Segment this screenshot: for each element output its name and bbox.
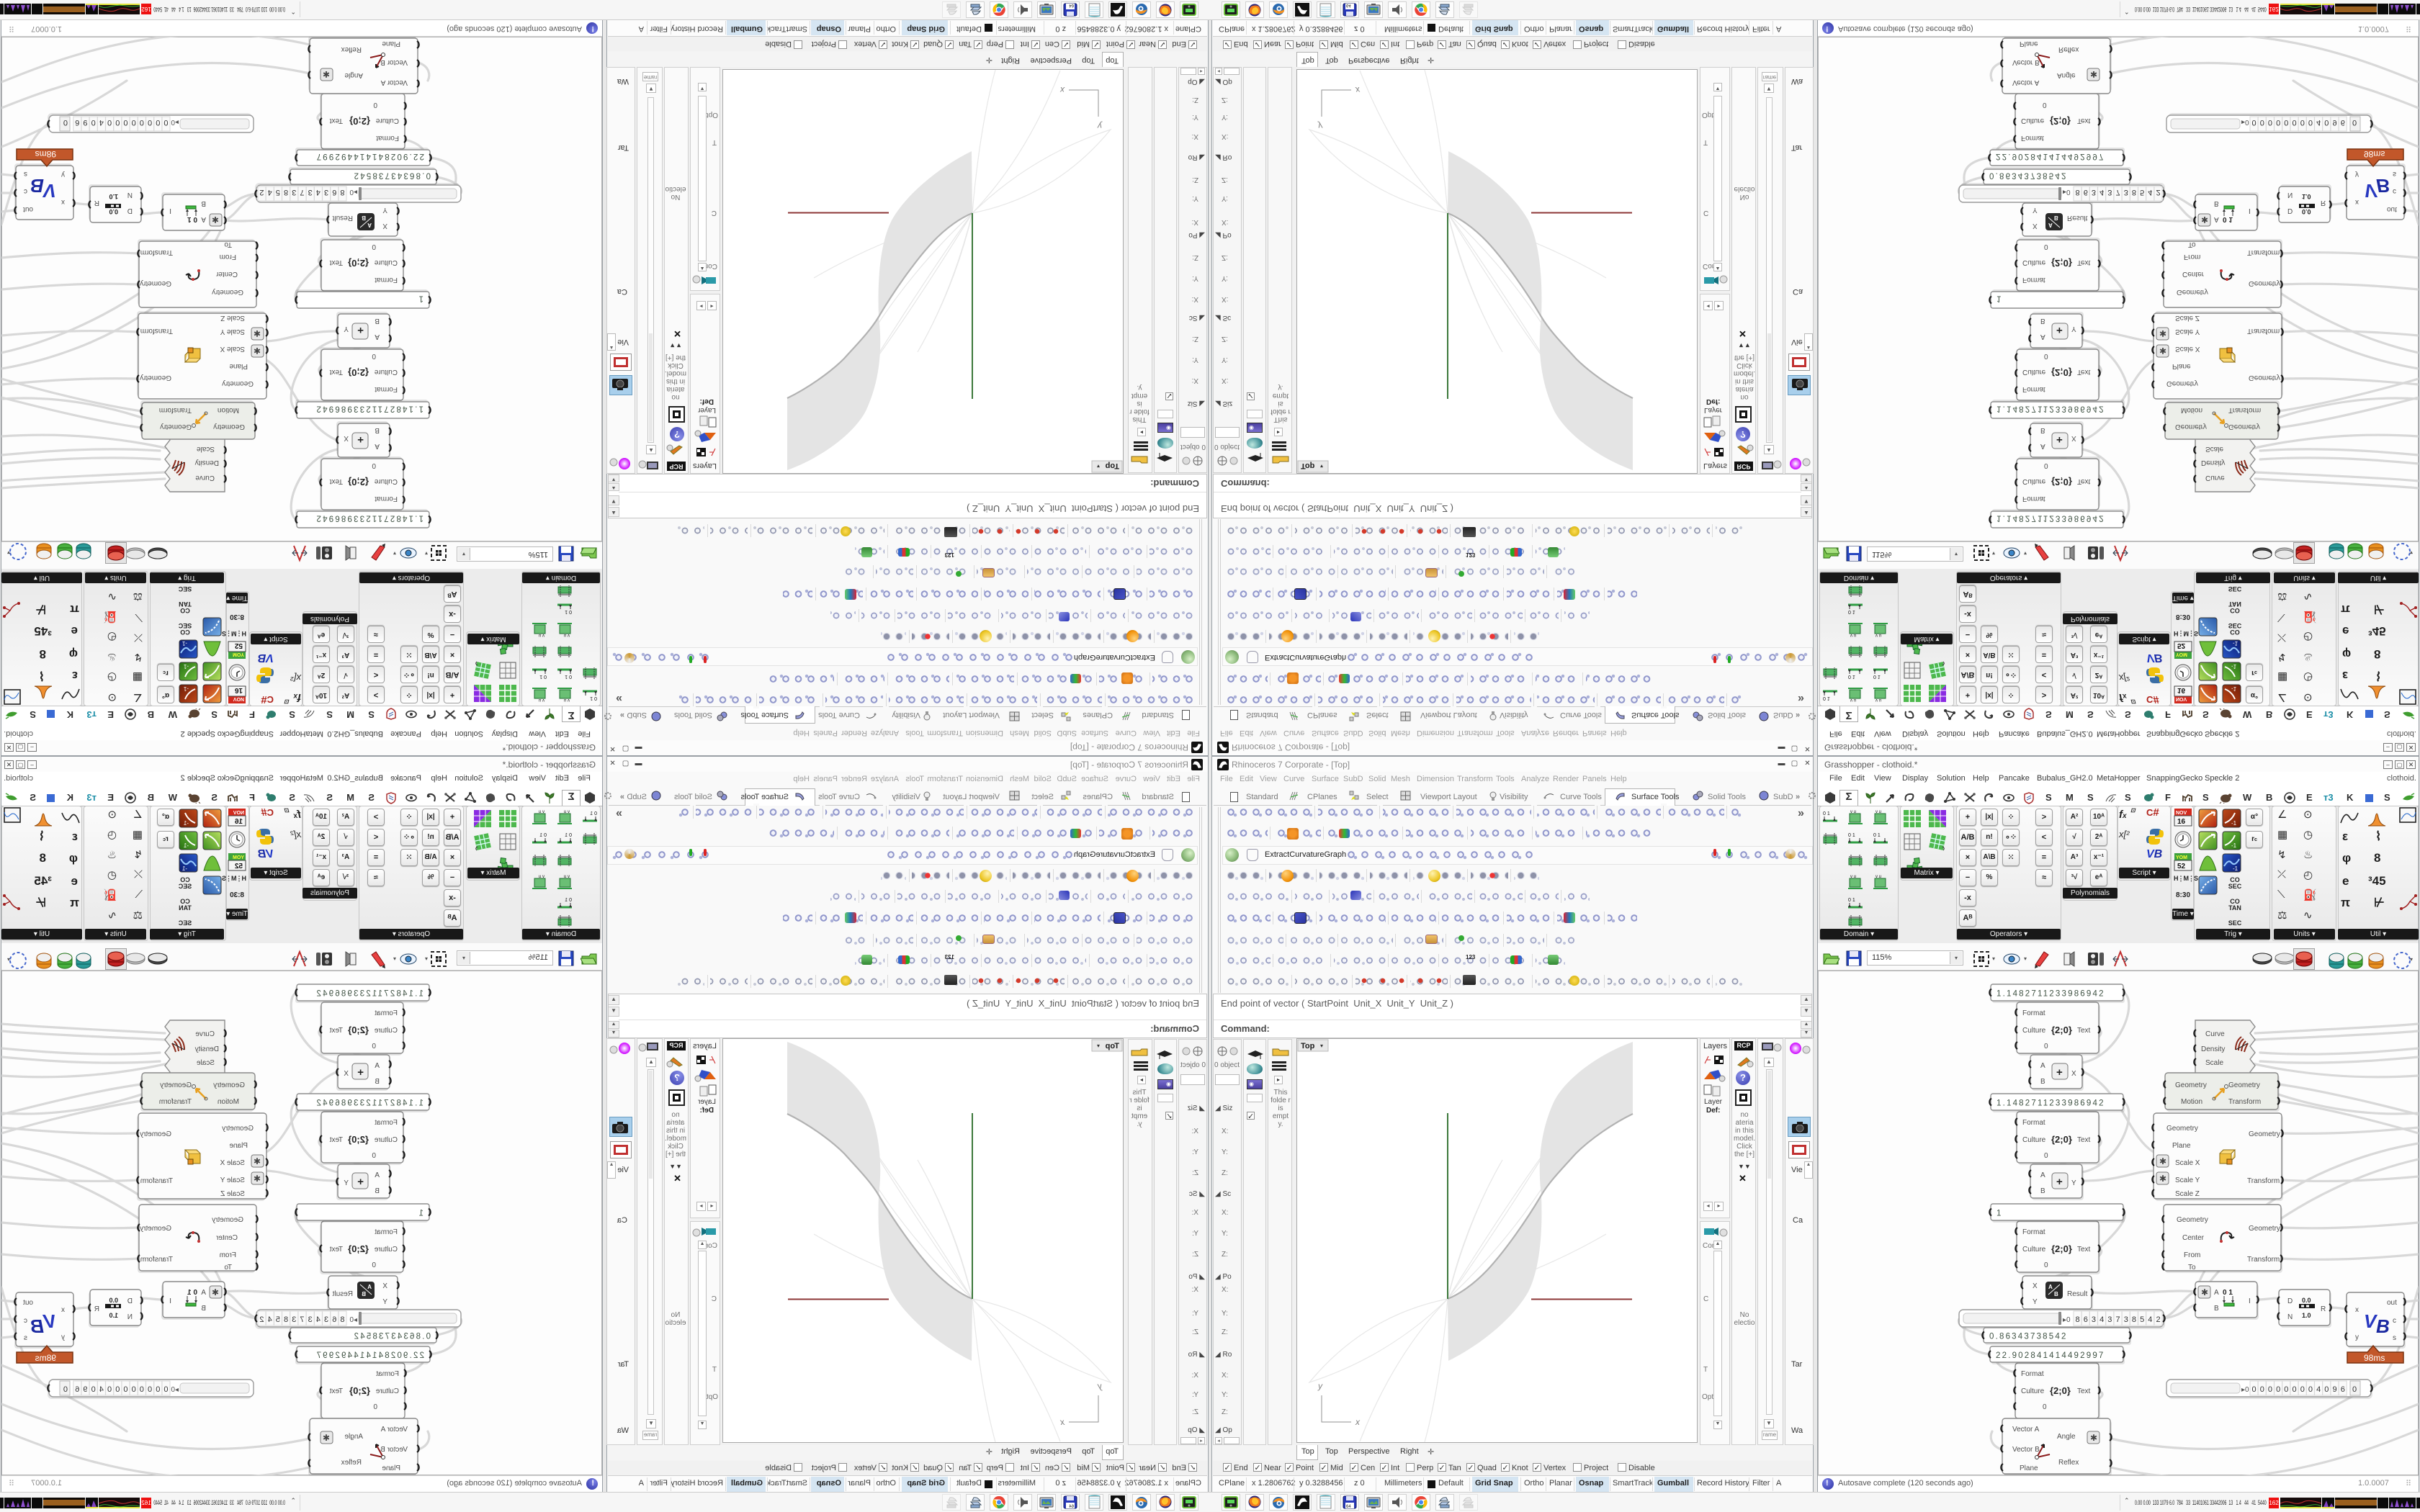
svg-text:B: B (30, 1315, 44, 1337)
svg-text:64: 64 (1069, 3, 1074, 7)
svg-text:Plane: Plane (2020, 40, 2038, 48)
svg-text:B: B (375, 1078, 380, 1086)
svg-text:1: 1 (1996, 1210, 2003, 1218)
svg-text:Text: Text (2077, 368, 2091, 376)
svg-text:-1: -1 (2233, 640, 2238, 647)
svg-text:Motion: Motion (218, 1098, 239, 1106)
svg-text:s: s (2393, 1334, 2396, 1342)
svg-text:8: 8 (2132, 1315, 2136, 1324)
svg-text:X: X (2071, 434, 2076, 442)
svg-text:Density: Density (2201, 1045, 2225, 1053)
svg-text:+: + (2056, 324, 2063, 336)
svg-text:Geometry: Geometry (2228, 423, 2260, 431)
svg-text:16: 16 (2177, 686, 2186, 694)
svg-text:Format: Format (375, 276, 398, 284)
svg-text:Scale Y: Scale Y (220, 328, 245, 336)
svg-text:0.86343738542: 0.86343738542 (1989, 171, 2068, 180)
svg-text:Curve: Curve (195, 474, 215, 482)
svg-text:0: 0 (2044, 243, 2048, 251)
svg-text:X: X (2033, 222, 2038, 230)
svg-text:Culture: Culture (374, 1136, 398, 1144)
svg-text:✱: ✱ (2201, 215, 2208, 225)
svg-text:✱: ✱ (2159, 1156, 2166, 1166)
svg-text:16: 16 (234, 686, 243, 694)
svg-text:9: 9 (2333, 1385, 2337, 1394)
svg-text:Top: Top (1301, 462, 1315, 470)
svg-text:I: I (169, 207, 171, 215)
svg-text:Y: Y (344, 1179, 349, 1187)
svg-text:1.0: 1.0 (109, 193, 118, 200)
svg-text:y: y (2355, 171, 2359, 179)
svg-text:v u: v u (1875, 810, 1881, 814)
svg-text:Transform: Transform (159, 406, 192, 414)
svg-text:Culture: Culture (2022, 477, 2046, 485)
svg-text:v u: v u (1850, 633, 1856, 637)
svg-text:Format: Format (2021, 1370, 2044, 1378)
svg-text:0: 0 (148, 118, 152, 127)
svg-text:0: 0 (123, 1385, 127, 1394)
svg-text:9: 9 (83, 118, 87, 127)
svg-text:Transform: Transform (140, 248, 173, 256)
svg-text:c: c (24, 1317, 27, 1325)
svg-text:8: 8 (340, 1315, 344, 1324)
svg-text:▸0: ▸0 (2241, 118, 2249, 126)
svg-text:I: I (169, 1297, 171, 1305)
svg-text:A: A (2040, 1171, 2045, 1179)
svg-text:Format: Format (375, 1119, 398, 1127)
svg-text:0: 0 (107, 118, 112, 127)
svg-text:Culture: Culture (375, 1387, 399, 1395)
svg-text:0: 0 (2043, 1403, 2047, 1411)
svg-text:64: 64 (1069, 1505, 1074, 1509)
svg-text:A: A (367, 1284, 372, 1290)
svg-text:Geometry: Geometry (212, 288, 243, 296)
svg-text:Geometry: Geometry (140, 279, 171, 287)
svg-text:Reflex: Reflex (2058, 1459, 2079, 1467)
svg-text:From: From (220, 253, 236, 261)
svg-text:1.1482711233986942: 1.1482711233986942 (1996, 990, 2105, 999)
svg-text:Format: Format (375, 385, 398, 393)
svg-text:D: D (127, 1297, 133, 1305)
svg-text:-1: -1 (181, 640, 187, 647)
svg-text:0 1: 0 1 (1848, 833, 1855, 838)
svg-text:{2;0}: {2;0} (2051, 258, 2072, 269)
svg-text:0 1: 0 1 (187, 215, 197, 223)
svg-text:To: To (224, 240, 232, 248)
svg-text:Culture: Culture (374, 368, 398, 376)
svg-text:Angle: Angle (344, 1433, 363, 1441)
svg-text:Vector B: Vector B (380, 58, 408, 66)
svg-text:Plane: Plane (2020, 1464, 2038, 1472)
svg-text:▸0: ▸0 (171, 118, 179, 126)
svg-text:3: 3 (2092, 188, 2096, 197)
svg-text:NOV: NOV (233, 811, 245, 816)
svg-text:Reflex: Reflex (341, 1459, 362, 1467)
svg-text:Plane: Plane (2172, 1142, 2191, 1150)
svg-text:98ms: 98ms (35, 1353, 56, 1363)
svg-text:1: 1 (417, 1210, 423, 1218)
svg-text:From: From (220, 1251, 236, 1259)
svg-text:0: 0 (2308, 118, 2313, 127)
svg-text:Plane: Plane (2172, 362, 2191, 370)
svg-text:Text: Text (2077, 1136, 2091, 1144)
svg-text:0: 0 (163, 1385, 168, 1394)
svg-text:0 1: 0 1 (1823, 811, 1830, 816)
svg-text:0: 0 (140, 118, 144, 127)
svg-text:Format: Format (375, 1228, 398, 1236)
svg-text:0 1: 0 1 (565, 674, 572, 679)
svg-text:v u: v u (1850, 810, 1856, 814)
svg-text:Vector B: Vector B (380, 1446, 408, 1454)
svg-text:Text: Text (2077, 477, 2091, 485)
svg-text:0 1: 0 1 (590, 811, 597, 816)
svg-text:Angle: Angle (2057, 71, 2076, 79)
svg-text:0 1: 0 1 (1848, 898, 1855, 903)
svg-text:Center: Center (215, 270, 238, 278)
svg-text:52: 52 (234, 642, 243, 649)
svg-text:22.902841414492997: 22.902841414492997 (315, 152, 424, 161)
svg-text:Text: Text (329, 258, 343, 266)
svg-text:0: 0 (373, 1403, 377, 1411)
svg-text:Scale: Scale (2205, 1059, 2223, 1067)
svg-text:out: out (23, 205, 33, 213)
svg-text:4: 4 (2316, 1385, 2321, 1394)
svg-text:1.0: 1.0 (2302, 193, 2311, 200)
svg-text:3: 3 (2107, 188, 2112, 197)
svg-text:v u: v u (1850, 698, 1856, 702)
svg-text:0: 0 (132, 1385, 136, 1394)
svg-text:0: 0 (156, 1385, 160, 1394)
svg-text:0.0: 0.0 (2302, 1297, 2311, 1304)
svg-text:V: V (42, 1310, 56, 1332)
svg-text:0: 0 (2284, 1385, 2288, 1394)
svg-text:Geometry: Geometry (222, 1125, 254, 1133)
svg-text:4: 4 (99, 118, 104, 127)
svg-text:v u: v u (539, 633, 544, 637)
svg-text:I: I (2249, 207, 2251, 215)
svg-text:Angle: Angle (2057, 1433, 2076, 1441)
svg-text:0: 0 (2252, 1385, 2257, 1394)
svg-text:D: D (2287, 207, 2293, 215)
svg-text:8: 8 (2076, 1315, 2080, 1324)
svg-text:0: 0 (372, 1261, 376, 1269)
svg-text:8: 8 (284, 188, 288, 197)
svg-text:Geometry: Geometry (2249, 1225, 2280, 1233)
svg-text:Geometry: Geometry (222, 379, 254, 387)
svg-text:X: X (2033, 1282, 2038, 1290)
svg-text:Y: Y (2071, 325, 2076, 333)
svg-text:✱: ✱ (212, 1287, 219, 1297)
svg-text:c: c (2393, 187, 2396, 195)
svg-text:0: 0 (2044, 1261, 2048, 1269)
svg-text:0: 0 (115, 1385, 120, 1394)
svg-text:+: + (357, 433, 364, 446)
svg-text:8: 8 (340, 188, 344, 197)
svg-text:Result: Result (2067, 1290, 2088, 1298)
svg-text:Top: Top (1105, 1042, 1119, 1050)
svg-text:▾: ▾ (1320, 1043, 1323, 1049)
svg-text:0: 0 (372, 1043, 376, 1050)
svg-text:52: 52 (2177, 642, 2186, 649)
svg-text:1.0: 1.0 (2302, 1312, 2311, 1319)
svg-text:Density: Density (2201, 459, 2225, 467)
svg-text:Culture: Culture (2022, 1136, 2046, 1144)
svg-text:4: 4 (2148, 188, 2152, 197)
svg-text:V: V (42, 180, 56, 202)
svg-text:Text: Text (2077, 258, 2091, 266)
svg-text:{2;0}: {2;0} (2050, 1385, 2071, 1396)
svg-text:Geometry: Geometry (2249, 279, 2280, 287)
svg-text:B: B (2040, 1187, 2045, 1195)
svg-text:Scale X: Scale X (220, 345, 245, 353)
svg-text:Culture: Culture (375, 117, 399, 125)
svg-text:N: N (2287, 191, 2293, 199)
svg-text:0: 0 (2252, 118, 2257, 127)
svg-text:-1: -1 (2231, 842, 2237, 849)
svg-text:Geometry: Geometry (140, 374, 171, 382)
svg-text:Scale Y: Scale Y (2175, 328, 2200, 336)
svg-text:0.86343738542: 0.86343738542 (352, 1333, 431, 1341)
svg-text:2: 2 (259, 188, 264, 197)
svg-text:A: A (2214, 1289, 2219, 1297)
svg-text:B: B (2376, 175, 2390, 197)
svg-text:Format: Format (375, 495, 398, 503)
svg-text:52: 52 (234, 863, 243, 870)
svg-text:16: 16 (2177, 818, 2186, 826)
svg-text:YOM: YOM (2176, 652, 2187, 657)
svg-text:0: 0 (2300, 118, 2305, 127)
svg-text:From: From (2184, 1251, 2200, 1259)
svg-text:6: 6 (2084, 188, 2088, 197)
svg-text:x: x (61, 1306, 65, 1314)
svg-text:Vector A: Vector A (380, 1426, 408, 1434)
svg-text:▸0: ▸0 (2063, 1316, 2071, 1324)
svg-text:4: 4 (99, 1385, 104, 1394)
svg-text:Scale X: Scale X (2175, 1159, 2200, 1167)
svg-text:Reflex: Reflex (2058, 45, 2079, 53)
svg-text:0: 0 (123, 118, 127, 127)
svg-text:s: s (2393, 170, 2396, 178)
svg-text:v u: v u (1850, 875, 1856, 879)
svg-text:Vector A: Vector A (380, 78, 408, 86)
svg-text:A: A (2214, 215, 2219, 223)
svg-text:To: To (2188, 1264, 2196, 1272)
svg-text:1.1482711233986942: 1.1482711233986942 (1996, 405, 2105, 413)
svg-text:{2;0}: {2;0} (2051, 367, 2072, 378)
svg-text:▸0: ▸0 (2241, 1386, 2249, 1394)
svg-text:A: A (2040, 1062, 2045, 1070)
svg-text:{2;0}: {2;0} (2051, 1134, 2072, 1145)
svg-text:3: 3 (2092, 1315, 2096, 1324)
svg-text:B: B (2214, 199, 2219, 207)
svg-text:Scale X: Scale X (220, 1159, 245, 1167)
svg-text:+: + (2056, 433, 2063, 446)
svg-text:{2;0}: {2;0} (348, 367, 369, 378)
svg-text:Text: Text (2077, 1246, 2091, 1254)
svg-text:Geometry: Geometry (213, 1081, 245, 1089)
svg-text:Format: Format (375, 1009, 398, 1017)
svg-text:X: X (2071, 1070, 2076, 1078)
svg-text:Scale X: Scale X (2175, 345, 2200, 353)
svg-text:Text: Text (2077, 1027, 2091, 1035)
svg-text:v u: v u (539, 698, 544, 702)
svg-text:v u: v u (564, 698, 570, 702)
svg-text:N: N (127, 191, 133, 199)
svg-text:0: 0 (2044, 1152, 2048, 1160)
svg-text:Scale: Scale (197, 445, 215, 453)
svg-text:A: A (375, 1171, 380, 1179)
svg-text:Scale: Scale (2205, 445, 2223, 453)
svg-text:y: y (1097, 121, 1103, 131)
svg-text:6: 6 (2084, 1315, 2088, 1324)
svg-text:B: B (362, 1291, 366, 1297)
svg-text:Result: Result (2067, 214, 2088, 222)
svg-text:0: 0 (2043, 101, 2047, 109)
svg-text:0: 0 (373, 101, 377, 109)
svg-text:y: y (1097, 1381, 1103, 1391)
svg-text:Y: Y (2071, 1179, 2076, 1187)
svg-text:Plane: Plane (382, 40, 400, 48)
svg-text:0: 0 (2260, 118, 2264, 127)
svg-text:0: 0 (2268, 1385, 2272, 1394)
svg-text:Angle: Angle (344, 71, 363, 79)
svg-text:-1: -1 (183, 663, 189, 670)
svg-text:0 1: 0 1 (1873, 674, 1881, 679)
svg-text:Transform: Transform (2247, 327, 2280, 335)
svg-text:Scale Z: Scale Z (2175, 1190, 2200, 1198)
svg-text:Culture: Culture (374, 1027, 398, 1035)
svg-text:v u: v u (539, 875, 544, 879)
svg-text:0: 0 (115, 118, 120, 127)
svg-text:0 1: 0 1 (1848, 674, 1855, 679)
svg-text:Culture: Culture (2022, 258, 2046, 266)
svg-text:0: 0 (372, 1152, 376, 1160)
svg-text:1.1482711233986942: 1.1482711233986942 (315, 514, 423, 523)
svg-text:Scale Z: Scale Z (220, 314, 245, 322)
svg-text:A: A (367, 222, 372, 228)
svg-text:NOV: NOV (2176, 811, 2187, 816)
svg-text:v u: v u (1875, 698, 1881, 702)
svg-text:+: + (2056, 1066, 2063, 1079)
svg-text:I: I (2249, 1297, 2251, 1305)
svg-text:Geometry: Geometry (160, 423, 192, 431)
svg-text:x: x (2355, 1306, 2359, 1314)
svg-text:8: 8 (284, 1315, 288, 1324)
svg-text:3: 3 (2107, 1315, 2112, 1324)
svg-text:B: B (2376, 1315, 2390, 1337)
svg-text:0: 0 (2276, 1385, 2280, 1394)
svg-text:0 1: 0 1 (187, 1289, 197, 1297)
svg-text:3: 3 (292, 188, 296, 197)
svg-text:2: 2 (2156, 1315, 2161, 1324)
svg-text:3: 3 (324, 1315, 328, 1324)
svg-text:0: 0 (2352, 1385, 2357, 1394)
svg-text:Density: Density (195, 1045, 219, 1053)
svg-text:▸0: ▸0 (171, 1386, 179, 1394)
svg-text:R: R (94, 1305, 99, 1313)
svg-text:B: B (375, 426, 380, 434)
svg-text:Text: Text (2077, 1387, 2091, 1395)
svg-text:B: B (2054, 1291, 2058, 1297)
svg-text:Culture: Culture (2021, 1387, 2045, 1395)
svg-text:From: From (2184, 253, 2200, 261)
svg-text:X: X (344, 434, 349, 442)
svg-text:Geometry: Geometry (160, 1081, 192, 1089)
svg-text:Text: Text (329, 117, 343, 125)
svg-text:x: x (1059, 85, 1065, 95)
svg-text:{2;0}: {2;0} (348, 1243, 369, 1254)
svg-text:✱: ✱ (254, 346, 261, 356)
svg-text:▾: ▾ (1097, 463, 1100, 469)
svg-text:Culture: Culture (2021, 117, 2045, 125)
svg-text:✱: ✱ (2090, 1433, 2097, 1443)
svg-text:0: 0 (163, 118, 168, 127)
svg-text:▾: ▾ (1097, 1043, 1100, 1049)
svg-text:s: s (24, 1334, 27, 1342)
svg-text:B: B (2040, 317, 2045, 325)
svg-text:A: A (375, 442, 380, 450)
svg-text:6: 6 (332, 1315, 336, 1324)
svg-text:✱: ✱ (323, 69, 330, 79)
svg-text:Culture: Culture (374, 477, 398, 485)
svg-text:Y: Y (382, 1298, 387, 1306)
svg-text:To: To (224, 1264, 232, 1272)
svg-text:Transform: Transform (2247, 1177, 2280, 1185)
svg-text:Geometry: Geometry (2249, 1130, 2280, 1138)
svg-text:YOM: YOM (233, 652, 244, 657)
svg-text:Y: Y (2033, 1298, 2038, 1306)
svg-text:Y: Y (344, 325, 349, 333)
svg-text:Curve: Curve (2205, 474, 2225, 482)
svg-text:{2;0}: {2;0} (348, 258, 369, 269)
svg-text:x: x (2355, 198, 2359, 206)
svg-text:X: X (344, 1070, 349, 1078)
svg-text:Geometry: Geometry (2177, 1216, 2208, 1224)
svg-text:0: 0 (372, 352, 376, 360)
svg-text:-1: -1 (183, 820, 189, 827)
svg-text:R: R (2321, 1305, 2326, 1313)
svg-text:✱: ✱ (254, 1174, 261, 1184)
svg-text:Culture: Culture (2022, 1027, 2046, 1035)
svg-text:Result: Result (332, 214, 353, 222)
svg-text:A: A (375, 1062, 380, 1070)
svg-text:v u: v u (539, 810, 544, 814)
svg-text:+: + (2056, 1176, 2063, 1188)
svg-text:Vector B: Vector B (2012, 1446, 2040, 1454)
svg-text:4: 4 (2099, 188, 2104, 197)
svg-text:52: 52 (2177, 863, 2186, 870)
svg-text:+: + (357, 1066, 364, 1079)
svg-text:Text: Text (329, 368, 343, 376)
svg-text:A: A (375, 333, 380, 341)
svg-text:Geometry: Geometry (213, 423, 245, 431)
svg-text:0: 0 (2324, 1385, 2329, 1394)
svg-text:0: 0 (132, 118, 136, 127)
svg-text:Top: Top (1301, 1042, 1315, 1050)
svg-text:Geometry: Geometry (2228, 1081, 2260, 1089)
svg-text:3: 3 (2124, 1315, 2128, 1324)
svg-text:Vector B: Vector B (2012, 58, 2040, 66)
svg-text:Scale Z: Scale Z (2175, 314, 2200, 322)
svg-text:0.0: 0.0 (2302, 208, 2311, 215)
svg-text:B: B (2040, 1078, 2045, 1086)
svg-text:Culture: Culture (2022, 1246, 2046, 1254)
svg-text:{2;0}: {2;0} (2051, 1025, 2072, 1035)
svg-text:Text: Text (2077, 117, 2091, 125)
svg-text:{2;0}: {2;0} (2051, 477, 2072, 487)
svg-text:22.902841414492997: 22.902841414492997 (1996, 152, 2105, 161)
svg-text:▸0: ▸0 (349, 188, 357, 196)
